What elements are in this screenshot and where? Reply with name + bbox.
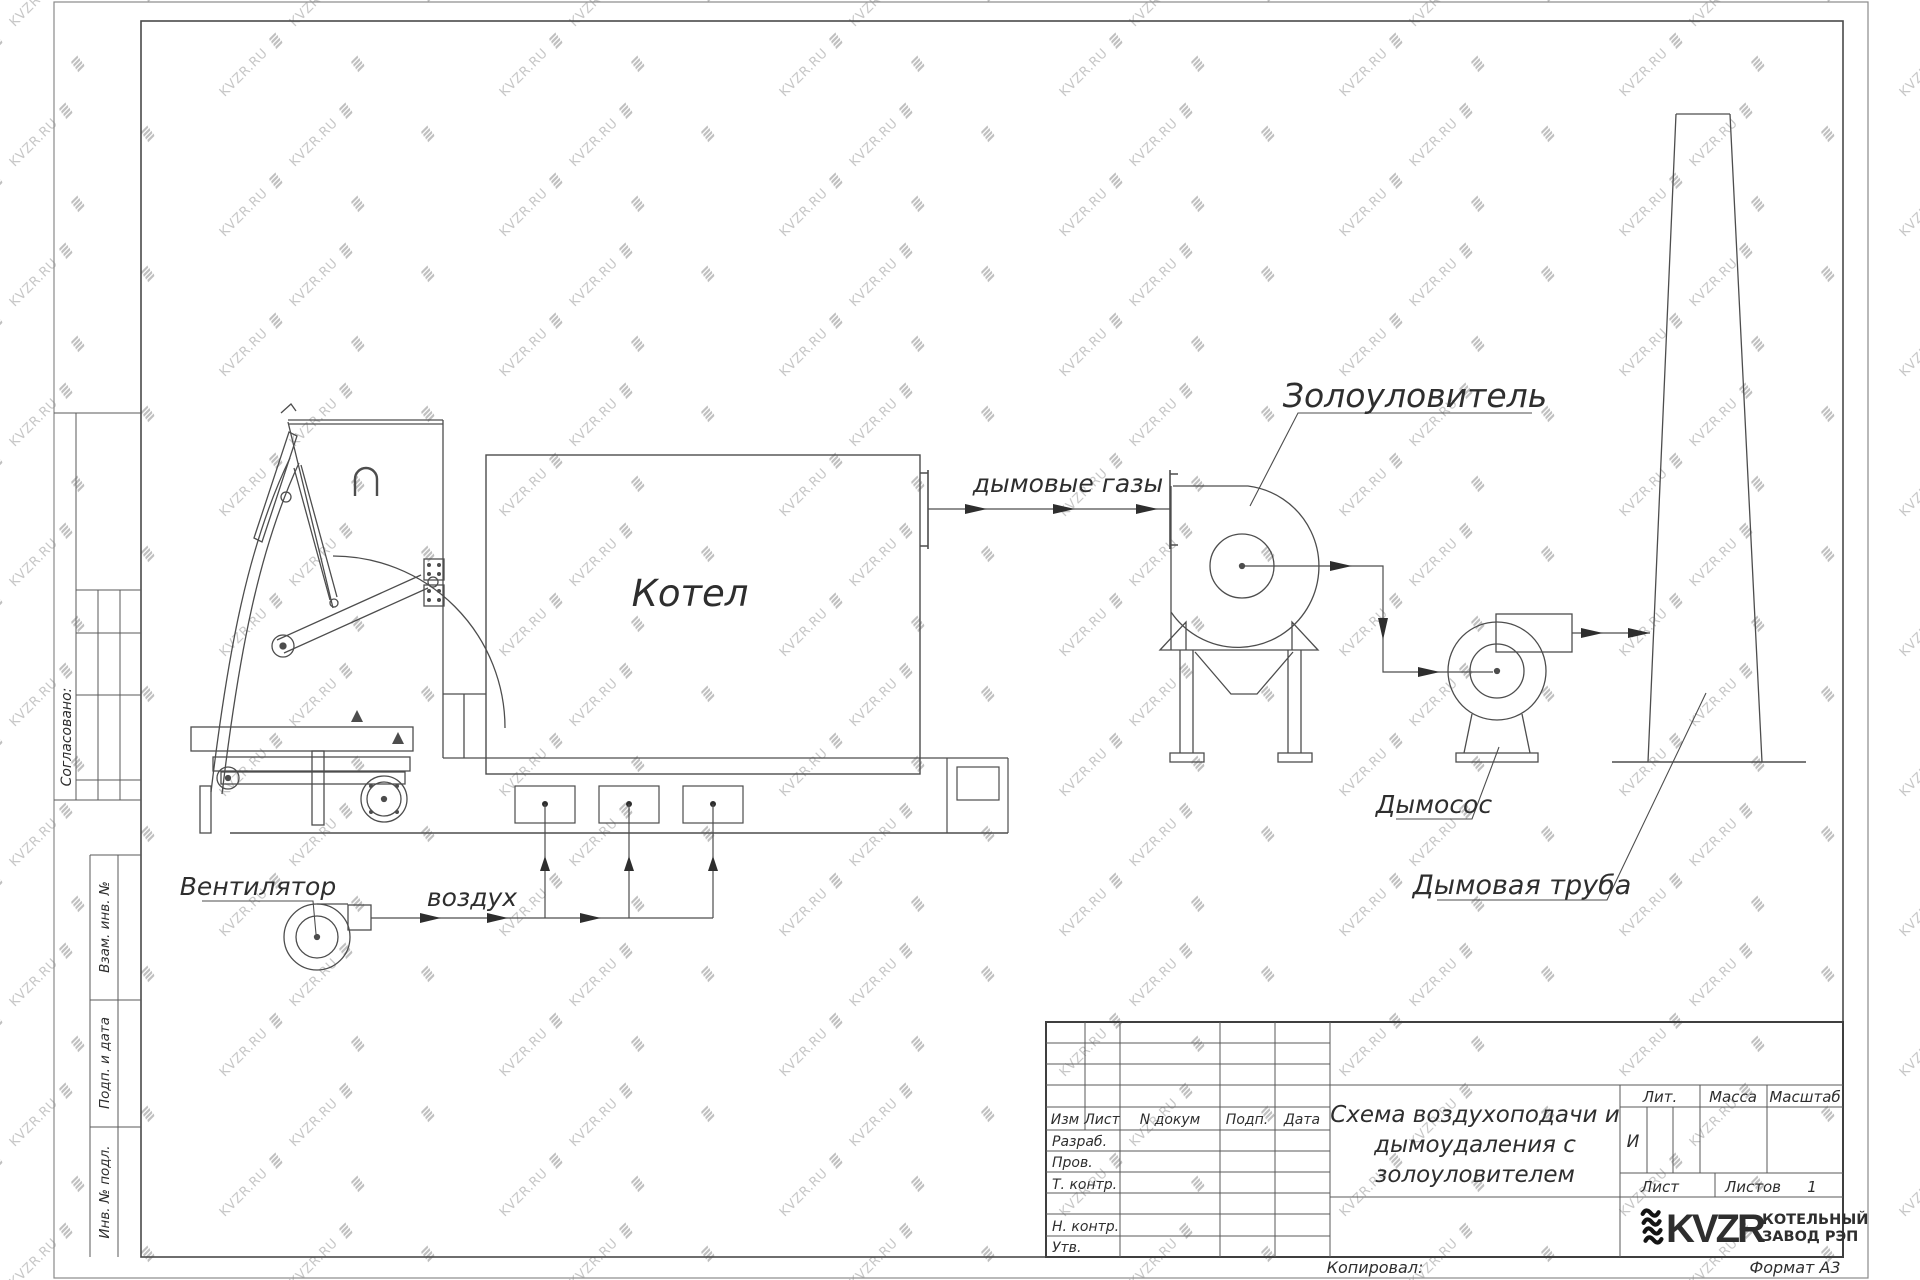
col-doc: N докум: [1140, 1112, 1201, 1128]
company-name-line2: ЗАВОД РЭП: [1762, 1229, 1858, 1245]
lit-value: И: [1627, 1132, 1640, 1152]
col-list: Лист: [1083, 1112, 1120, 1128]
col-date: Дата: [1283, 1112, 1320, 1128]
rear-support: [957, 767, 999, 800]
sheets-label: Листов: [1724, 1178, 1781, 1196]
title-block: Изм Лист N докум Подп. Дата Разраб. Пров…: [1046, 1022, 1868, 1257]
air-label: воздух: [427, 883, 517, 912]
gas-path: [1242, 561, 1493, 677]
lit-label: Лит.: [1642, 1088, 1678, 1106]
smoke-exhauster-callout: Дымосос: [1375, 747, 1499, 819]
doc-title-line2: дымоудаления с: [1373, 1132, 1576, 1158]
company-name-line1: КОТЕЛЬНЫЙ: [1762, 1211, 1868, 1228]
boiler-outlet-flange: [920, 470, 928, 549]
sheets-value: 1: [1807, 1178, 1817, 1196]
role-developed: Разраб.: [1052, 1134, 1107, 1150]
drawing-sheet: KVZR.RUKVZR.RUKVZR.RUKVZR.RUKVZR.RUKVZR.…: [0, 0, 1920, 1280]
footer-labels: Копировал: Формат А3: [1327, 1258, 1841, 1277]
flue-gases-label: дымовые газы: [972, 469, 1163, 498]
format-label: Формат А3: [1749, 1258, 1840, 1277]
margin-blocks: [54, 413, 141, 1257]
chimney: [1612, 114, 1806, 762]
doc-title-line1: Схема воздухоподачи и: [1330, 1102, 1620, 1128]
hopper-mark: [355, 468, 377, 496]
role-checked: Пров.: [1052, 1155, 1093, 1171]
boiler-label: Котел: [632, 572, 749, 615]
fan: [284, 904, 371, 970]
copied-label: Копировал:: [1327, 1258, 1424, 1277]
doc-title-line3: золоуловителем: [1375, 1162, 1575, 1188]
smoke-exhauster-label: Дымосос: [1375, 790, 1492, 819]
subst-inv-label: Взам. инв. №: [97, 881, 113, 973]
smoke-exhauster: [1448, 614, 1650, 762]
role-t-control: Т. контр.: [1052, 1177, 1117, 1193]
air-duct-line: [371, 804, 718, 923]
chimney-label: Дымовая труба: [1412, 870, 1632, 901]
ash-collector-callout: Золоуловитель: [1250, 376, 1547, 506]
scale-label: Масштаб: [1769, 1088, 1840, 1106]
company-logo: KVZR КОТЕЛЬНЫЙ ЗАВОД РЭП: [1642, 1207, 1868, 1251]
mass-label: Масса: [1709, 1088, 1757, 1106]
role-approved: Утв.: [1052, 1240, 1081, 1256]
fan-label: Вентилятор: [180, 872, 336, 901]
outer-border: [54, 2, 1868, 1278]
inv-original-label: Инв. № подл.: [97, 1145, 113, 1238]
col-sign: Подп.: [1226, 1112, 1268, 1128]
col-izm: Изм: [1051, 1112, 1080, 1128]
sheet-label: Лист: [1640, 1178, 1680, 1196]
ash-collector: [1160, 470, 1319, 762]
inner-frame: [141, 21, 1843, 1257]
stoker-hopper: [191, 404, 1008, 833]
sheet-frames: [54, 2, 1868, 1278]
flue-gas-line: дымовые газы: [928, 469, 1170, 514]
boiler: [486, 455, 1008, 833]
ash-collector-label: Золоуловитель: [1283, 376, 1547, 415]
kvzr-logo-text: KVZR: [1666, 1207, 1766, 1251]
gas-path-arrows: [1330, 561, 1440, 677]
margin-labels: Согласовано: Взам. инв. № Подп. и дата И…: [59, 688, 113, 1239]
kvzr-logo-icon: [1642, 1209, 1661, 1243]
schematic-drawing: Согласовано: Взам. инв. № Подп. и дата И…: [0, 0, 1920, 1280]
approved-label: Согласовано:: [59, 688, 75, 787]
sign-date-label: Подп. и дата: [97, 1017, 113, 1109]
role-n-control: Н. контр.: [1052, 1219, 1119, 1235]
